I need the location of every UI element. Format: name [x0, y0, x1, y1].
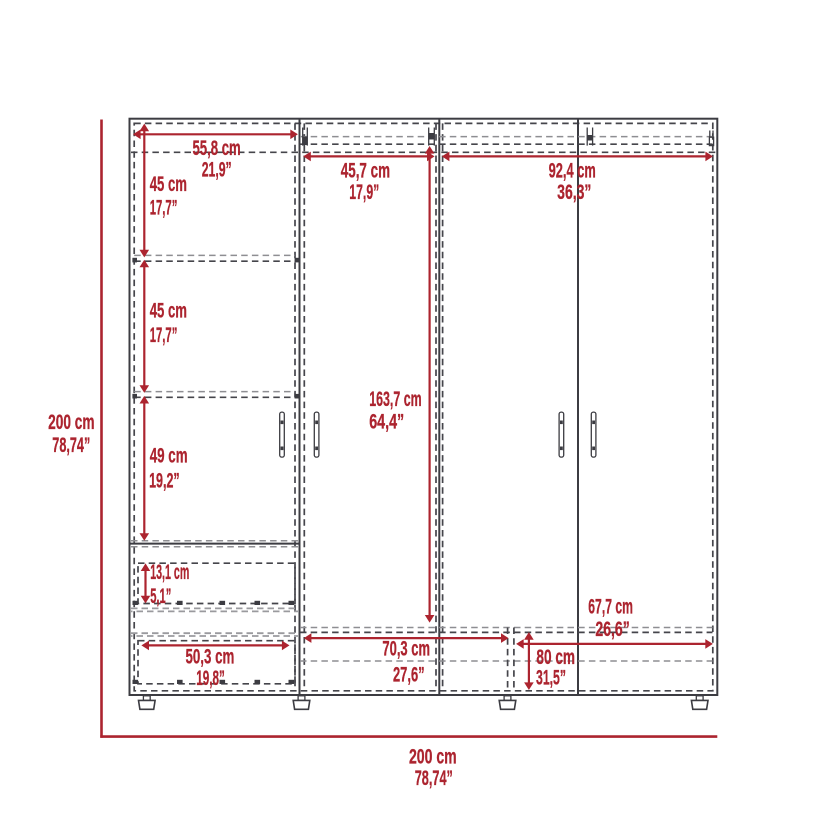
svg-text:27,6”: 27,6”: [393, 663, 425, 687]
svg-text:36,3”: 36,3”: [557, 180, 591, 204]
svg-text:200 cm: 200 cm: [409, 744, 457, 768]
svg-text:78,74”: 78,74”: [52, 433, 90, 457]
svg-text:17,9”: 17,9”: [349, 180, 379, 204]
svg-text:21,9”: 21,9”: [202, 158, 232, 182]
svg-text:200 cm: 200 cm: [48, 410, 94, 434]
svg-text:70,3 cm: 70,3 cm: [382, 637, 430, 661]
svg-text:31,5”: 31,5”: [536, 666, 566, 690]
svg-text:78,74”: 78,74”: [415, 766, 453, 790]
svg-text:163,7 cm: 163,7 cm: [369, 387, 422, 411]
svg-text:45 cm: 45 cm: [150, 172, 187, 196]
svg-text:92,4 cm: 92,4 cm: [549, 158, 596, 182]
svg-text:45 cm: 45 cm: [150, 299, 187, 323]
svg-text:50,3 cm: 50,3 cm: [186, 644, 235, 668]
svg-text:55,8 cm: 55,8 cm: [192, 136, 240, 160]
svg-text:45,7 cm: 45,7 cm: [341, 158, 390, 182]
svg-text:17,7”: 17,7”: [150, 196, 178, 220]
svg-text:49 cm: 49 cm: [150, 444, 188, 468]
svg-text:13,1 cm: 13,1 cm: [150, 560, 189, 584]
svg-text:19,2”: 19,2”: [149, 469, 180, 493]
svg-text:17,7”: 17,7”: [150, 323, 178, 347]
svg-text:19,8”: 19,8”: [196, 666, 225, 690]
svg-text:26,6”: 26,6”: [595, 617, 629, 641]
svg-text:5,1”: 5,1”: [150, 584, 171, 608]
svg-text:67,7 cm: 67,7 cm: [588, 594, 633, 618]
svg-text:64,4”: 64,4”: [369, 409, 404, 433]
